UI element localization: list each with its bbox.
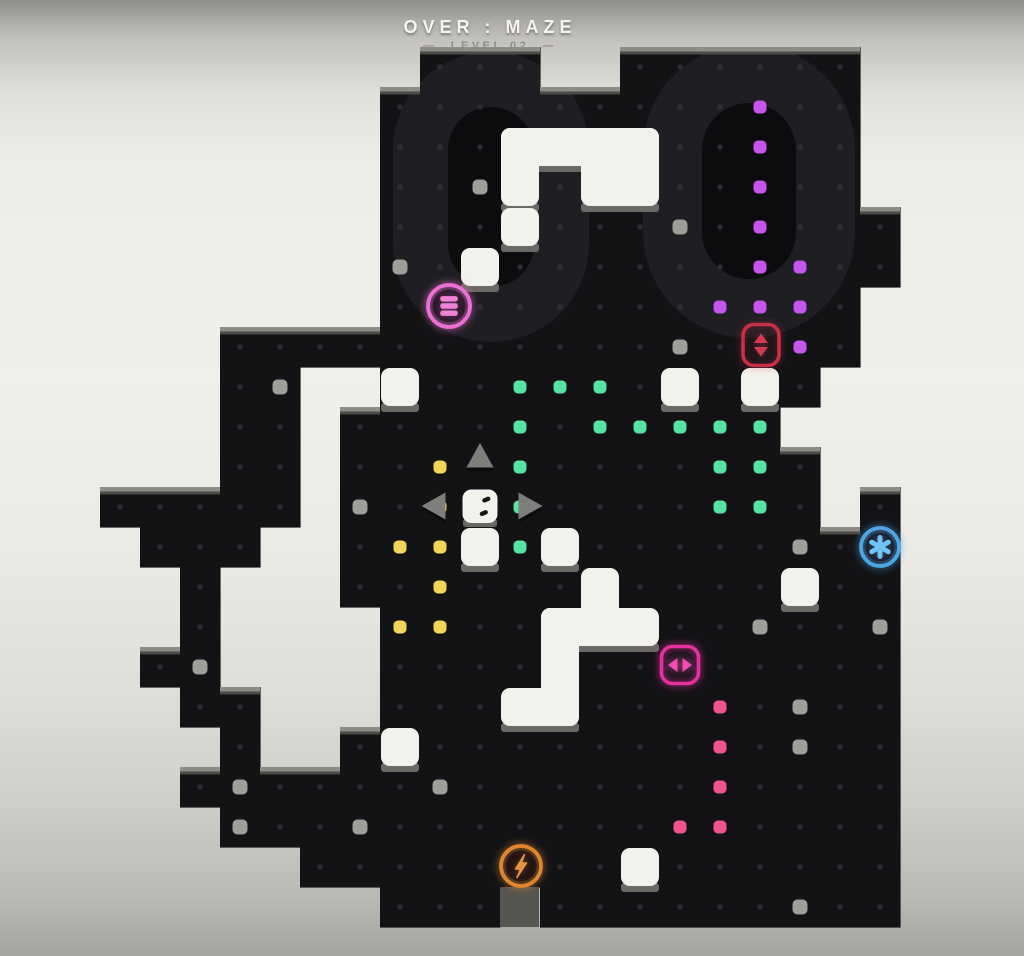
pellet-yellow — [434, 541, 447, 554]
grid-dot — [518, 585, 523, 590]
grid-dot — [798, 665, 803, 670]
grid-dot — [638, 905, 643, 910]
grid-dot — [878, 585, 883, 590]
switch-dot — [793, 540, 808, 555]
grid-dot — [638, 745, 643, 750]
grid-dot — [558, 865, 563, 870]
grid-dot — [758, 65, 763, 70]
grid-dot — [478, 625, 483, 630]
grid-dot — [558, 345, 563, 350]
level-indicator: — LEVEL 02 — — [240, 40, 740, 52]
grid-dot — [518, 825, 523, 830]
white-block — [461, 528, 499, 572]
switch-dot — [873, 620, 888, 635]
grid-dot — [758, 705, 763, 710]
grid-dot — [238, 345, 243, 350]
pellet-yellow — [434, 461, 447, 474]
grid-dot — [718, 865, 723, 870]
pellet-green — [754, 421, 767, 434]
grid-dot — [718, 905, 723, 910]
grid-dot — [798, 145, 803, 150]
grid-dot — [558, 585, 563, 590]
grid-dot — [838, 585, 843, 590]
grid-dot — [718, 185, 723, 190]
grid-dot — [678, 905, 683, 910]
grid-dot — [198, 625, 203, 630]
switch-dot — [273, 380, 288, 395]
switch-dot — [793, 700, 808, 715]
grid-dot — [758, 905, 763, 910]
grid-dot — [398, 905, 403, 910]
pellet-green — [594, 421, 607, 434]
grid-dot — [638, 105, 643, 110]
grid-dot — [398, 705, 403, 710]
grid-dot — [478, 305, 483, 310]
grid-dot — [518, 625, 523, 630]
grid-dot — [878, 905, 883, 910]
grid-dot — [758, 825, 763, 830]
grid-dot — [838, 665, 843, 670]
grid-dot — [278, 345, 283, 350]
game-scene: OVER : MAZE — LEVEL 02 — — [0, 0, 1024, 956]
grid-dot — [838, 745, 843, 750]
grid-dot — [638, 65, 643, 70]
grid-dot — [398, 585, 403, 590]
player-character[interactable] — [463, 490, 498, 528]
pellet-green — [714, 461, 727, 474]
pellet-purple — [754, 101, 767, 114]
grid-dot — [798, 865, 803, 870]
grid-dot — [438, 385, 443, 390]
grid-dot — [558, 465, 563, 470]
switch-dot — [393, 260, 408, 275]
grid-dot — [838, 145, 843, 150]
grid-dot — [358, 545, 363, 550]
grid-dot — [838, 625, 843, 630]
switch-dot — [793, 900, 808, 915]
grid-dot — [358, 425, 363, 430]
white-block — [621, 848, 659, 892]
pellet-yellow — [394, 541, 407, 554]
white-block — [541, 528, 579, 572]
grid-dot — [798, 105, 803, 110]
grid-dot — [678, 705, 683, 710]
grid-dot — [198, 545, 203, 550]
grid-dot — [438, 865, 443, 870]
grid-dot — [438, 265, 443, 270]
grid-dot — [718, 385, 723, 390]
pellet-purple — [754, 261, 767, 274]
grid-dot — [598, 345, 603, 350]
grid-dot — [478, 105, 483, 110]
grid-dot — [758, 865, 763, 870]
grid-dot — [798, 465, 803, 470]
pellet-pink — [714, 781, 727, 794]
grid-dot — [358, 585, 363, 590]
grid-dot — [758, 785, 763, 790]
grid-dot — [398, 665, 403, 670]
grid-dot — [558, 225, 563, 230]
grid-dot — [758, 545, 763, 550]
grid-dot — [718, 545, 723, 550]
pellet-green — [674, 421, 687, 434]
grid-dot — [438, 225, 443, 230]
switch-dot — [673, 340, 688, 355]
grid-dot — [678, 585, 683, 590]
grid-dot — [478, 825, 483, 830]
grid-dot — [798, 385, 803, 390]
grid-dot — [518, 65, 523, 70]
grid-dot — [878, 225, 883, 230]
grid-dot — [838, 825, 843, 830]
grid-dot — [518, 265, 523, 270]
grid-dot — [558, 105, 563, 110]
pellet-green — [634, 421, 647, 434]
grid-dot — [238, 545, 243, 550]
grid-dot — [438, 105, 443, 110]
grid-dot — [238, 465, 243, 470]
pellet-green — [754, 501, 767, 514]
grid-dot — [318, 865, 323, 870]
grid-dot — [358, 465, 363, 470]
grid-dot — [878, 705, 883, 710]
grid-dot — [758, 665, 763, 670]
pellet-green — [594, 381, 607, 394]
grid-dot — [478, 225, 483, 230]
grid-dot — [358, 345, 363, 350]
grid-dot — [718, 665, 723, 670]
grid-dot — [238, 745, 243, 750]
pellet-green — [754, 461, 767, 474]
grid-dot — [558, 265, 563, 270]
grid-dot — [438, 65, 443, 70]
grid-dot — [598, 465, 603, 470]
grid-dot — [478, 585, 483, 590]
grid-dot — [598, 265, 603, 270]
grid-dot — [158, 505, 163, 510]
pellet-purple — [714, 301, 727, 314]
grid-dot — [358, 745, 363, 750]
grid-dot — [198, 585, 203, 590]
grid-dot — [238, 385, 243, 390]
grid-dot — [678, 465, 683, 470]
grid-dot — [398, 145, 403, 150]
grid-dot — [478, 785, 483, 790]
grid-dot — [638, 385, 643, 390]
grid-dot — [638, 345, 643, 350]
switch-dot — [193, 660, 208, 675]
pellet-yellow — [394, 621, 407, 634]
grid-dot — [678, 185, 683, 190]
switch-dot — [793, 740, 808, 755]
switch-dot — [473, 180, 488, 195]
grid-dot — [878, 745, 883, 750]
grid-dot — [678, 745, 683, 750]
grid-dot — [638, 665, 643, 670]
grid-dot — [598, 225, 603, 230]
white-block — [381, 728, 419, 772]
grid-dot — [118, 505, 123, 510]
grid-dot — [318, 825, 323, 830]
grid-dot — [838, 185, 843, 190]
grid-dot — [198, 505, 203, 510]
grid-dot — [438, 185, 443, 190]
grid-dot — [798, 505, 803, 510]
grid-dot — [398, 785, 403, 790]
grid-dot — [358, 865, 363, 870]
grid-dot — [838, 705, 843, 710]
grid-dot — [438, 145, 443, 150]
grid-dot — [158, 545, 163, 550]
grid-dot — [438, 345, 443, 350]
pellet-green — [514, 421, 527, 434]
switch-dot — [353, 820, 368, 835]
grid-dot — [238, 705, 243, 710]
grid-dot — [558, 825, 563, 830]
grid-dot — [878, 865, 883, 870]
switch-dot — [233, 780, 248, 795]
grid-dot — [678, 505, 683, 510]
grid-dot — [478, 425, 483, 430]
grid-dot — [478, 745, 483, 750]
grid-dot — [838, 65, 843, 70]
grid-dot — [718, 585, 723, 590]
grid-dot — [398, 345, 403, 350]
grid-dot — [638, 785, 643, 790]
pellet-green — [714, 501, 727, 514]
maze-board — [0, 0, 1024, 956]
grid-dot — [558, 785, 563, 790]
grid-dot — [398, 105, 403, 110]
white-block — [501, 208, 539, 252]
grid-dot — [518, 305, 523, 310]
grid-dot — [478, 665, 483, 670]
grid-dot — [678, 545, 683, 550]
grid-dot — [798, 185, 803, 190]
grid-dot — [838, 905, 843, 910]
grid-dot — [518, 345, 523, 350]
grid-dot — [598, 705, 603, 710]
grid-dot — [398, 865, 403, 870]
grid-dot — [638, 545, 643, 550]
grid-dot — [678, 625, 683, 630]
grid-dot — [878, 505, 883, 510]
grid-dot — [278, 785, 283, 790]
grid-dot — [878, 785, 883, 790]
grid-dot — [238, 425, 243, 430]
grid-dot — [558, 505, 563, 510]
grid-dot — [598, 745, 603, 750]
grid-dot — [398, 465, 403, 470]
switch-dot — [353, 500, 368, 515]
grid-dot — [598, 545, 603, 550]
switch-dot — [753, 620, 768, 635]
switch-dot — [233, 820, 248, 835]
pellet-green — [714, 421, 727, 434]
grid-dot — [398, 305, 403, 310]
grid-dot — [318, 345, 323, 350]
grid-dot — [398, 425, 403, 430]
grid-dot — [838, 105, 843, 110]
white-block — [461, 248, 499, 292]
grid-dot — [678, 865, 683, 870]
grid-dot — [438, 905, 443, 910]
grid-dot — [638, 825, 643, 830]
grid-dot — [678, 65, 683, 70]
pellet-purple — [794, 301, 807, 314]
pellet-pink — [714, 821, 727, 834]
grid-dot — [518, 665, 523, 670]
grid-dot — [638, 265, 643, 270]
grid-dot — [598, 825, 603, 830]
grid-dot — [598, 505, 603, 510]
grid-dot — [478, 705, 483, 710]
menu-icon — [428, 285, 470, 327]
maze — [0, 0, 1024, 956]
grid-dot — [638, 505, 643, 510]
lightning-icon — [501, 846, 541, 886]
pellet-pink — [714, 701, 727, 714]
switch-dot — [673, 220, 688, 235]
grid-dot — [278, 825, 283, 830]
floor-notch — [501, 887, 539, 927]
grid-dot — [678, 785, 683, 790]
grid-dot — [598, 305, 603, 310]
pellet-purple — [754, 221, 767, 234]
grid-dot — [838, 545, 843, 550]
grid-dot — [718, 265, 723, 270]
grid-dot — [398, 825, 403, 830]
grid-dot — [638, 225, 643, 230]
grid-dot — [278, 425, 283, 430]
pellet-purple — [794, 261, 807, 274]
grid-dot — [358, 785, 363, 790]
pellet-green — [554, 381, 567, 394]
white-block — [781, 568, 819, 612]
white-block — [381, 368, 419, 412]
grid-dot — [398, 185, 403, 190]
grid-dot — [798, 225, 803, 230]
white-block — [661, 368, 699, 412]
pellet-green — [514, 461, 527, 474]
switch-dot — [433, 780, 448, 795]
grid-dot — [478, 145, 483, 150]
grid-dot — [838, 865, 843, 870]
grid-dot — [838, 265, 843, 270]
pellet-green — [514, 541, 527, 554]
pellet-purple — [794, 341, 807, 354]
grid-dot — [558, 745, 563, 750]
grid-dot — [558, 905, 563, 910]
grid-dot — [638, 465, 643, 470]
grid-dot — [598, 665, 603, 670]
grid-dot — [478, 905, 483, 910]
grid-dot — [678, 105, 683, 110]
grid-dot — [878, 825, 883, 830]
grid-dot — [198, 785, 203, 790]
grid-dot — [438, 425, 443, 430]
grid-dot — [398, 505, 403, 510]
grid-dot — [558, 425, 563, 430]
grid-dot — [638, 585, 643, 590]
grid-dot — [158, 665, 163, 670]
grid-dot — [718, 225, 723, 230]
grid-dot — [838, 305, 843, 310]
pellet-purple — [754, 301, 767, 314]
grid-dot — [678, 145, 683, 150]
grid-dot — [718, 105, 723, 110]
grid-dot — [798, 65, 803, 70]
grid-dot — [798, 625, 803, 630]
grid-dot — [278, 505, 283, 510]
pellet-green — [514, 381, 527, 394]
grid-dot — [318, 785, 323, 790]
grid-dot — [478, 865, 483, 870]
grid-dot — [398, 225, 403, 230]
pellet-purple — [754, 141, 767, 154]
grid-dot — [598, 905, 603, 910]
pellet-yellow — [434, 581, 447, 594]
grid-dot — [718, 345, 723, 350]
grid-dot — [278, 465, 283, 470]
white-block — [741, 368, 779, 412]
grid-dot — [838, 225, 843, 230]
grid-dot — [678, 265, 683, 270]
grid-dot — [878, 265, 883, 270]
grid-dot — [718, 625, 723, 630]
grid-dot — [878, 665, 883, 670]
grid-dot — [438, 825, 443, 830]
grid-dot — [798, 785, 803, 790]
game-title: OVER : MAZE — [240, 17, 740, 38]
grid-dot — [518, 785, 523, 790]
grid-dot — [478, 385, 483, 390]
pellet-pink — [714, 741, 727, 754]
grid-dot — [478, 65, 483, 70]
grid-dot — [758, 745, 763, 750]
grid-dot — [598, 105, 603, 110]
grid-dot — [638, 705, 643, 710]
grid-dot — [718, 145, 723, 150]
grid-dot — [438, 665, 443, 670]
asterisk-icon — [861, 528, 899, 566]
grid-dot — [678, 305, 683, 310]
grid-dot — [838, 345, 843, 350]
grid-dot — [238, 505, 243, 510]
grid-dot — [438, 745, 443, 750]
grid-dot — [638, 305, 643, 310]
pellet-purple — [754, 181, 767, 194]
grid-dot — [198, 705, 203, 710]
grid-dot — [518, 745, 523, 750]
grid-dot — [518, 105, 523, 110]
grid-dot — [798, 825, 803, 830]
grid-dot — [598, 785, 603, 790]
grid-dot — [478, 345, 483, 350]
pellet-yellow — [434, 621, 447, 634]
grid-dot — [558, 305, 563, 310]
grid-dot — [438, 705, 443, 710]
grid-dot — [558, 185, 563, 190]
grid-dot — [758, 585, 763, 590]
grid-dot — [598, 865, 603, 870]
pellet-pink — [674, 821, 687, 834]
grid-dot — [718, 65, 723, 70]
grid-dot — [838, 785, 843, 790]
